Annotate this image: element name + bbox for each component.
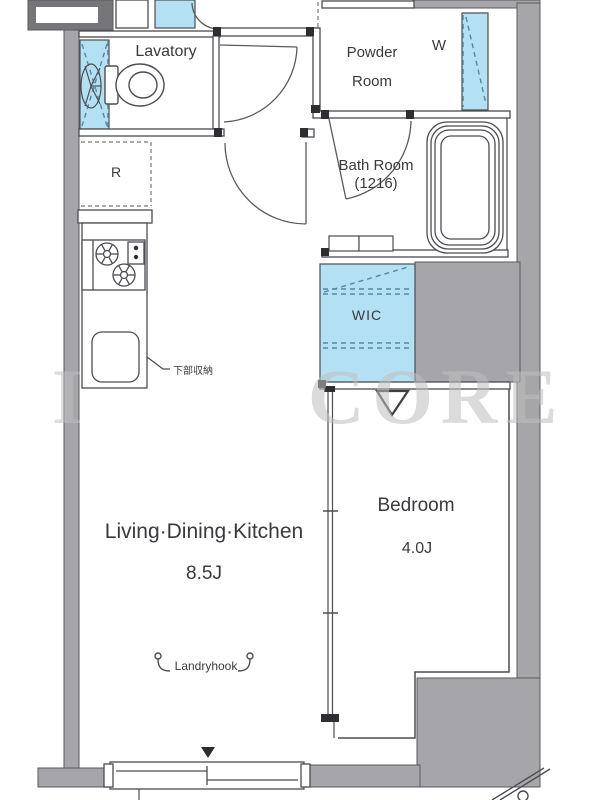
bath-counter [329, 236, 393, 251]
floor-plan: I CORE Lavatory Powder Room W Bath Room … [0, 0, 600, 800]
bath-room-label-name: Bath Room [338, 157, 413, 174]
powder-room-label-line2: Room [347, 73, 398, 90]
lower-storage-label: 下部収納 [173, 362, 213, 377]
kitchen-sink [92, 332, 139, 382]
bath-room-size-label: (1216) [338, 175, 413, 192]
refrigerator-label: R [111, 164, 121, 180]
window-direction-marker [201, 747, 215, 758]
toilet [105, 64, 164, 106]
stove-controls [128, 242, 144, 264]
bedroom-size-label: 4.0J [402, 540, 432, 558]
washer-zone [462, 13, 488, 110]
ldk-size-label: 8.5J [186, 563, 222, 585]
bottom-wall [300, 765, 420, 787]
floor-plan-linework [0, 0, 600, 800]
kitchen-counter [78, 210, 152, 388]
wic-zone [320, 264, 415, 384]
left-wall [64, 30, 79, 787]
lower-storage-leader [147, 357, 170, 369]
ldk-bedroom-partition [323, 389, 338, 738]
entrance-door [220, 45, 297, 122]
hall-to-kitchen-door [225, 142, 306, 224]
bedroom-label: Bedroom [377, 495, 454, 517]
entry-storage [116, 0, 148, 28]
bedroom-entry-marker [377, 391, 408, 415]
partition-bottom-cap [321, 714, 339, 722]
powder-room-label: Powder Room [347, 44, 398, 90]
laundry-hook-label: Landryhook [175, 659, 238, 673]
powder-room-label-line1: Powder [347, 44, 398, 61]
entry-cabinet-zone [155, 0, 195, 28]
bathtub [427, 122, 503, 253]
bottom-right-block [417, 678, 540, 787]
lavatory-label: Lavatory [135, 43, 196, 61]
ldk-label: Living·Dining·Kitchen [105, 520, 303, 544]
entry-cabinet-door [192, 3, 218, 29]
washer-label: W [432, 37, 446, 54]
wic-label: WIC [352, 307, 382, 323]
structural-block [415, 262, 520, 382]
sliding-window [104, 762, 310, 789]
bath-room-label: Bath Room (1216) [338, 157, 413, 192]
